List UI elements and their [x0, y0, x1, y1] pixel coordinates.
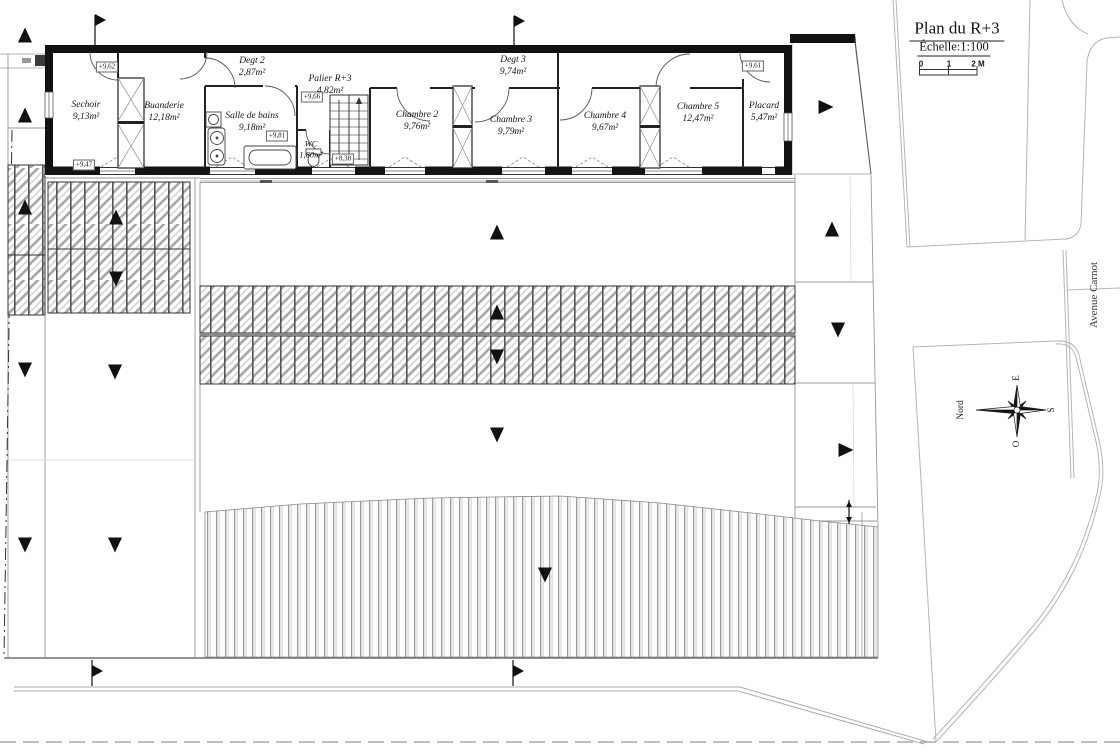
room-label-degt2: Degt 22,87m²	[239, 56, 265, 80]
room-name: Chambre 5	[677, 102, 719, 114]
room-name: Degt 3	[500, 55, 526, 67]
room-area: 12,47m²	[682, 114, 713, 124]
room-name: Chambre 3	[490, 115, 532, 127]
room-name: Buanderie	[144, 101, 184, 113]
scale-tick-1: 1	[947, 60, 951, 69]
level-marker: +9,62	[96, 62, 118, 73]
room-area: 9,76m²	[404, 122, 430, 132]
band-divider	[200, 333, 795, 336]
room-area: 2,87m²	[239, 68, 265, 78]
room-label-chambre3: Chambre 39,79m²	[490, 115, 532, 139]
room-area: 9,67m²	[592, 123, 618, 133]
room-area: 1,80m²	[299, 149, 323, 159]
scale-tick-2: 2 M	[971, 60, 984, 69]
scale-tick-0: 0	[919, 60, 923, 69]
room-name: Salle de bains	[225, 111, 278, 123]
room-name: Sechoir	[71, 100, 100, 112]
room-label-chambre5: Chambre 512,47m²	[677, 102, 719, 126]
compass-east-label: E	[1011, 375, 1021, 381]
skylight-hatched-bands	[8, 165, 795, 384]
room-label-chambre4: Chambre 49,67m²	[584, 111, 626, 135]
compass-south-label: S	[1046, 407, 1056, 412]
room-area: 5,47m²	[751, 113, 777, 123]
room-label-wc: WC1,80m²	[299, 138, 323, 159]
level-marker: +8,38	[332, 154, 354, 165]
room-label-sechoir: Sechoir9,13m²	[71, 100, 100, 124]
room-area: 9,74m²	[500, 67, 526, 77]
street-label: Avenue Carnot	[1088, 262, 1100, 328]
room-area: 9,18m²	[239, 123, 265, 133]
room-name: Chambre 2	[396, 110, 438, 122]
compass-north-label: Nord	[956, 400, 966, 420]
level-marker: +9,81	[266, 131, 288, 142]
room-name: Placard	[749, 101, 779, 113]
site-bottom-boundaries	[0, 658, 1120, 744]
plan-title: Plan du R+3	[909, 19, 1004, 42]
compass-west-label: O	[1011, 441, 1021, 448]
plan-scale: Échelle:1:100	[917, 40, 990, 57]
room-label-chambre2: Chambre 29,76m²	[396, 110, 438, 134]
room-area: 12,18m²	[148, 113, 179, 123]
level-marker: +9,66	[301, 92, 323, 103]
room-label-buanderie: Buanderie12,18m²	[144, 101, 184, 125]
floor-plan-canvas: Sechoir9,13m² Buanderie12,18m² Degt 22,8…	[0, 0, 1120, 752]
compass-rose	[976, 385, 1046, 437]
room-name: WC	[299, 138, 323, 149]
striped-roof-area	[205, 496, 878, 657]
room-label-placard: Placard5,47m²	[749, 101, 779, 125]
room-name: Degt 2	[239, 56, 265, 68]
room-label-degt3: Degt 39,74m²	[500, 55, 526, 79]
level-marker: +9,47	[73, 160, 95, 171]
room-name: Chambre 4	[584, 111, 626, 123]
level-marker: +9,61	[742, 61, 764, 72]
room-name: Palier R+3	[308, 74, 351, 86]
room-area: 9,79m²	[498, 127, 524, 137]
room-area: 9,13m²	[73, 112, 99, 122]
